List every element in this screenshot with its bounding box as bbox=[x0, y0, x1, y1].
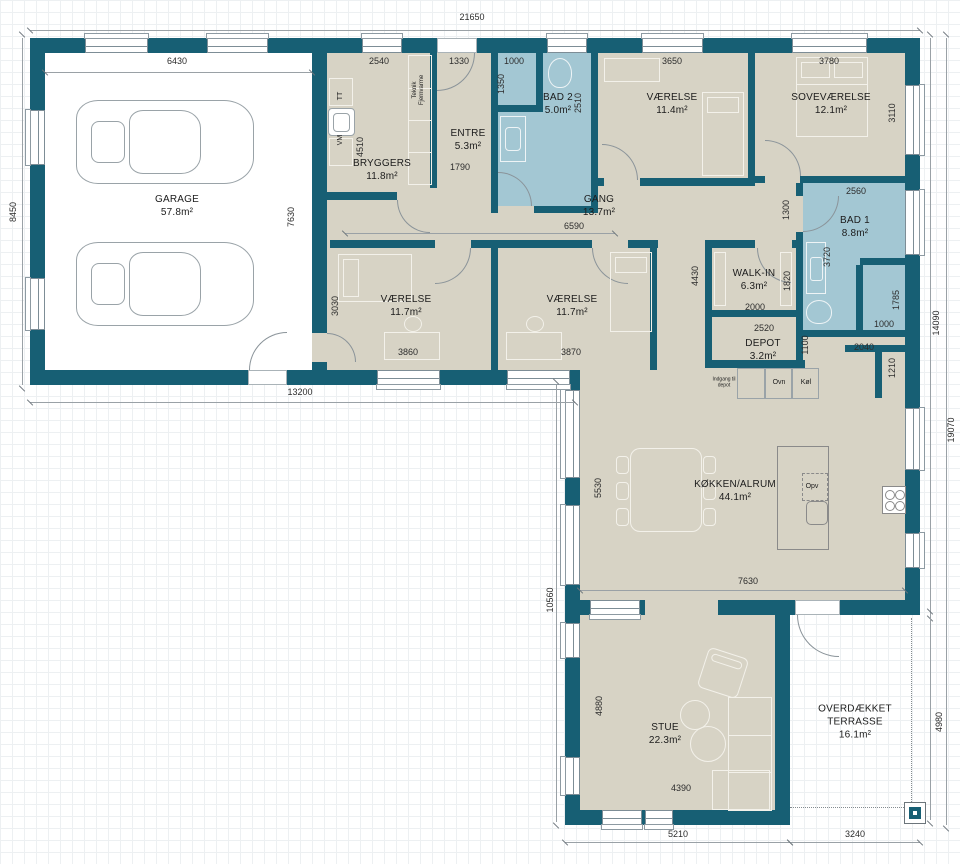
car-icon bbox=[76, 242, 254, 326]
desk-icon bbox=[506, 332, 562, 360]
room-label: SOVEVÆRELSE12.1m² bbox=[791, 91, 870, 117]
dimension-label: 3720 bbox=[822, 247, 832, 267]
dimension-label: 7630 bbox=[286, 207, 296, 227]
folding-door bbox=[565, 505, 580, 585]
fixture-label: VM bbox=[337, 135, 345, 146]
car-icon bbox=[76, 100, 254, 184]
wall-bath1-west-b bbox=[796, 232, 803, 318]
wall-bedroom114-south-b bbox=[640, 178, 748, 186]
room-label: GANG13.7m² bbox=[583, 193, 615, 219]
room-label: BAD 18.8m² bbox=[840, 214, 870, 240]
dimension-label: 2540 bbox=[369, 56, 389, 66]
wall-bedroom114-east bbox=[748, 53, 755, 186]
dimension-label: 6590 bbox=[564, 221, 584, 231]
wall-bath2-east bbox=[591, 53, 598, 213]
room-label: WALK-IN6.3m² bbox=[733, 267, 776, 293]
window bbox=[642, 38, 703, 53]
dimension-label: 4880 bbox=[594, 696, 604, 716]
wall-bryggers-south bbox=[327, 192, 397, 200]
floor-plan: GARAGE57.8m²BRYGGERS11.8m²ENTRE5.3m²BAD … bbox=[0, 0, 960, 864]
dim-line bbox=[45, 72, 312, 73]
terrace-edge-dashed bbox=[911, 618, 912, 806]
wall-bath2-closet-east bbox=[536, 53, 543, 112]
wall-garage-east bbox=[312, 53, 327, 333]
room-name: BAD 1 bbox=[840, 214, 870, 227]
window bbox=[792, 38, 867, 53]
wall-shower-west bbox=[856, 265, 863, 333]
dimension-label: 1000 bbox=[504, 56, 524, 66]
exterior-wall-left bbox=[30, 38, 45, 385]
room-name: BRYGGERS bbox=[353, 157, 411, 170]
wardrobe-icon bbox=[714, 252, 726, 306]
dimension-label: 7630 bbox=[738, 576, 758, 586]
dimension-label: 2000 bbox=[745, 302, 765, 312]
door-arc-terrace bbox=[797, 615, 839, 657]
room-area: 6.3m² bbox=[733, 280, 776, 293]
dimension-label: 3860 bbox=[398, 347, 418, 357]
window bbox=[905, 408, 920, 470]
dimension-label: 19070 bbox=[946, 417, 956, 442]
fixture-label: TT bbox=[337, 92, 345, 101]
room-area: 44.1m² bbox=[694, 491, 776, 504]
room-name: WALK-IN bbox=[733, 267, 776, 280]
window bbox=[590, 600, 640, 615]
wall-sovevaerelse-south-b bbox=[800, 176, 905, 183]
room-label: OVERDÆKKET TERRASSE16.1m² bbox=[808, 703, 903, 742]
dimension-label: 8450 bbox=[8, 202, 18, 222]
wall-walkin-west bbox=[705, 240, 712, 365]
kitchen-island-icon bbox=[777, 446, 829, 550]
window bbox=[565, 623, 580, 658]
wall-bath1-west-a bbox=[796, 183, 803, 196]
dim-line bbox=[930, 615, 931, 820]
terrace-edge-dashed bbox=[790, 807, 908, 808]
dimension-label: 5530 bbox=[593, 478, 603, 498]
side-table-icon bbox=[690, 726, 726, 762]
room-area: 5.3m² bbox=[451, 140, 486, 153]
exterior-wall-stue-east bbox=[775, 612, 790, 825]
dimension-label: 21650 bbox=[459, 12, 484, 22]
room-area: 12.1m² bbox=[791, 104, 870, 117]
room-name: OVERDÆKKET TERRASSE bbox=[808, 703, 903, 729]
dimension-label: 6430 bbox=[167, 56, 187, 66]
room-area: 57.8m² bbox=[155, 206, 199, 219]
dimension-label: 2040 bbox=[854, 342, 874, 352]
chair-icon bbox=[703, 456, 716, 474]
dimension-label: 1330 bbox=[449, 56, 469, 66]
room-area: 22.3m² bbox=[649, 734, 681, 747]
window bbox=[905, 533, 920, 568]
toilet-icon bbox=[548, 58, 572, 88]
dimension-label: 1820 bbox=[782, 271, 792, 291]
dimension-label: 4430 bbox=[690, 266, 700, 286]
dining-table-icon bbox=[630, 448, 702, 532]
fixture-label: Ovn bbox=[773, 379, 786, 387]
room-label: VÆRELSE11.7m² bbox=[381, 293, 432, 319]
toilet-icon bbox=[806, 300, 832, 324]
fixture-label: Køl bbox=[801, 379, 812, 387]
dimension-label: 1300 bbox=[781, 200, 791, 220]
room-name: STUE bbox=[649, 721, 681, 734]
vanity-sink-icon bbox=[500, 116, 526, 162]
room-name: DEPOT bbox=[745, 337, 780, 350]
room-area: 11.7m² bbox=[547, 306, 598, 319]
wall-bedroom1-east bbox=[491, 248, 498, 370]
dimension-label: 2560 bbox=[846, 186, 866, 196]
chair-icon bbox=[526, 316, 544, 332]
dimension-label: 3650 bbox=[662, 56, 682, 66]
room-name: SOVEVÆRELSE bbox=[791, 91, 870, 104]
terrace-door-opening bbox=[795, 600, 840, 615]
dimension-label: 1100 bbox=[800, 335, 810, 354]
room-name: KØKKEN/ALRUM bbox=[694, 478, 776, 491]
dimension-label: 1785 bbox=[891, 290, 901, 310]
dim-line bbox=[30, 402, 575, 403]
room-area: 11.4m² bbox=[647, 104, 698, 117]
wall-bath1-south bbox=[803, 330, 905, 337]
chaise-icon bbox=[712, 770, 770, 810]
wall-garage-east-b bbox=[312, 362, 327, 370]
window bbox=[565, 757, 580, 795]
wall-gang-south-c bbox=[628, 240, 658, 248]
room-area: 8.8m² bbox=[840, 227, 870, 240]
wall-gang-south-b bbox=[471, 240, 592, 248]
kitchen-stue-opening-floor bbox=[645, 600, 718, 615]
cooktop-icon bbox=[882, 486, 906, 514]
room-label: VÆRELSE11.7m² bbox=[547, 293, 598, 319]
dimension-label: 3110 bbox=[887, 103, 897, 122]
room-label: ENTRE5.3m² bbox=[451, 127, 486, 153]
wall-shower-north bbox=[860, 258, 905, 265]
dimension-label: 13200 bbox=[287, 387, 312, 397]
room-name: GANG bbox=[583, 193, 615, 206]
room-label: KØKKEN/ALRUM44.1m² bbox=[694, 478, 776, 504]
window bbox=[30, 278, 45, 330]
chair-icon bbox=[703, 508, 716, 526]
dimension-label: 1210 bbox=[887, 358, 897, 378]
window bbox=[602, 810, 642, 825]
room-label: GARAGE57.8m² bbox=[155, 193, 199, 219]
window bbox=[905, 85, 920, 155]
dimension-label: 4510 bbox=[355, 137, 365, 157]
folding-door bbox=[565, 390, 580, 478]
wall-walkin-north-a bbox=[712, 240, 755, 248]
dimension-label: 10560 bbox=[545, 587, 555, 612]
dim-line bbox=[22, 38, 23, 385]
dimension-label: 3870 bbox=[561, 347, 581, 357]
dim-line bbox=[580, 590, 905, 591]
dim-line bbox=[345, 233, 615, 234]
dimension-label: 1790 bbox=[450, 162, 470, 172]
dim-line bbox=[565, 842, 790, 843]
terrace-column bbox=[904, 802, 926, 824]
room-name: GARAGE bbox=[155, 193, 199, 206]
room-name: VÆRELSE bbox=[547, 293, 598, 306]
room-area: 16.1m² bbox=[808, 729, 903, 742]
window bbox=[207, 38, 268, 53]
window bbox=[905, 190, 920, 255]
bed-icon bbox=[702, 92, 744, 176]
dimension-label: 1350 bbox=[496, 74, 506, 94]
dimension-label: 3030 bbox=[330, 296, 340, 316]
garage-side-door-opening bbox=[248, 370, 287, 385]
room-area: 11.7m² bbox=[381, 306, 432, 319]
bed-icon bbox=[610, 252, 652, 332]
room-area: 3.2m² bbox=[745, 350, 780, 363]
wall-gang-south-a bbox=[330, 240, 435, 248]
room-label: DEPOT3.2m² bbox=[745, 337, 780, 363]
window bbox=[85, 38, 148, 53]
exterior-wall-bottom-upper-wing bbox=[30, 370, 580, 385]
chair-icon bbox=[616, 482, 629, 500]
chair-icon bbox=[616, 456, 629, 474]
window bbox=[507, 370, 570, 385]
room-name: ENTRE bbox=[451, 127, 486, 140]
dimension-label: 1000 bbox=[874, 319, 894, 329]
room-area: 5.0m² bbox=[543, 104, 573, 117]
room-label: BRYGGERS11.8m² bbox=[353, 157, 411, 183]
cabinet-icon bbox=[737, 368, 765, 399]
fixture-label: Teknik Fjernvarme bbox=[412, 75, 426, 105]
dimension-label: 4390 bbox=[671, 783, 691, 793]
dimension-label: 2520 bbox=[754, 323, 774, 333]
dimension-label: 2510 bbox=[573, 93, 583, 113]
wall-sovevaerelse-south-a bbox=[755, 176, 765, 183]
window bbox=[362, 38, 402, 53]
window bbox=[377, 370, 440, 385]
room-label: VÆRELSE11.4m² bbox=[647, 91, 698, 117]
fixture-label: Indgang til depot bbox=[712, 377, 735, 389]
room-area: 13.7m² bbox=[583, 206, 615, 219]
front-door-opening bbox=[437, 38, 477, 53]
fixture-label: Opv bbox=[806, 483, 819, 491]
window bbox=[645, 810, 673, 825]
room-name: BAD 2 bbox=[543, 91, 573, 104]
dim-line bbox=[30, 30, 920, 31]
room-label: BAD 25.0m² bbox=[543, 91, 573, 117]
dim-line bbox=[790, 842, 920, 843]
wall-kitchen-ne-b bbox=[875, 352, 882, 398]
dimension-label: 4980 bbox=[934, 712, 944, 732]
dimension-label: 5210 bbox=[668, 829, 688, 839]
dimension-label: 3240 bbox=[845, 829, 865, 839]
utility-sink-icon bbox=[328, 108, 355, 136]
dim-line bbox=[556, 385, 557, 822]
chair-icon bbox=[616, 508, 629, 526]
desk-icon bbox=[604, 58, 660, 82]
dimension-label: 14090 bbox=[931, 310, 941, 335]
room-name: VÆRELSE bbox=[381, 293, 432, 306]
wall-bath2-south-a bbox=[491, 206, 498, 213]
room-name: VÆRELSE bbox=[647, 91, 698, 104]
exterior-wall-kitchen-south-b bbox=[718, 600, 795, 615]
exterior-wall-stue-bottom bbox=[565, 810, 790, 825]
dimension-label: 3780 bbox=[819, 56, 839, 66]
window bbox=[30, 110, 45, 165]
room-label: STUE22.3m² bbox=[649, 721, 681, 747]
window bbox=[547, 38, 587, 53]
room-area: 11.8m² bbox=[353, 170, 411, 183]
